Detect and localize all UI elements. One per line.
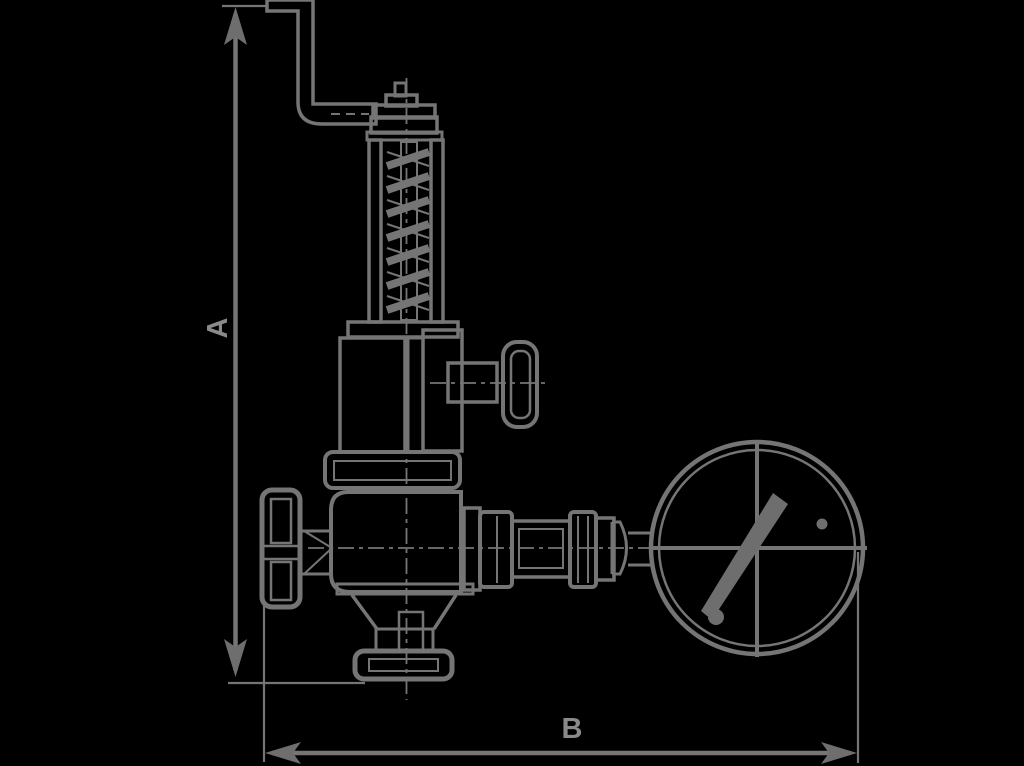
bonnet-column (408, 338, 423, 452)
union-nut (325, 452, 460, 488)
spring-coil-front (387, 152, 429, 310)
spring (387, 152, 429, 310)
bonnet-block (340, 338, 405, 452)
dim-b-label: B (562, 713, 583, 745)
outlet-plate (464, 508, 480, 590)
handwheel-lower-inner (271, 562, 291, 600)
knob-inner (511, 351, 530, 418)
valve-cap (371, 83, 437, 133)
gauge-stub-pipe (628, 533, 651, 565)
outlet-piping (464, 508, 651, 590)
outlet-nut-2-inner (578, 516, 588, 583)
handwheel-hub-band (262, 546, 300, 559)
dim-a-label: A (202, 317, 234, 338)
pressure-gauge (651, 440, 867, 657)
union-nut-outline (325, 452, 460, 488)
inlet-seat (399, 612, 423, 652)
spring-housing (348, 132, 458, 337)
yoke-left-column (369, 140, 381, 322)
bonnet (340, 330, 462, 452)
test-lever-outline (267, 0, 376, 124)
bonnet-shoulder (423, 330, 462, 451)
drawing-canvas: A B (0, 0, 1024, 766)
handwheel-outline (262, 490, 300, 607)
handwheel-stem-cone (304, 531, 332, 574)
gauge-dot-lower-left (708, 609, 724, 625)
inlet-neck (376, 629, 433, 651)
inlet-union (352, 595, 456, 679)
union-nut-inner (334, 461, 451, 480)
technical-drawing: A B (0, 0, 1024, 766)
knob-outline (503, 342, 537, 427)
body-base-lip (337, 584, 473, 594)
yoke-right-column (431, 140, 443, 322)
valve-body (331, 492, 473, 594)
gauge-dot-right (817, 519, 828, 530)
inlet-flange-inner (369, 659, 438, 671)
outlet-nut-2 (570, 512, 596, 587)
test-lever (267, 0, 376, 124)
handwheel-upper-inner (271, 499, 291, 543)
body-outline (331, 492, 461, 592)
gauge-needle (701, 493, 788, 620)
